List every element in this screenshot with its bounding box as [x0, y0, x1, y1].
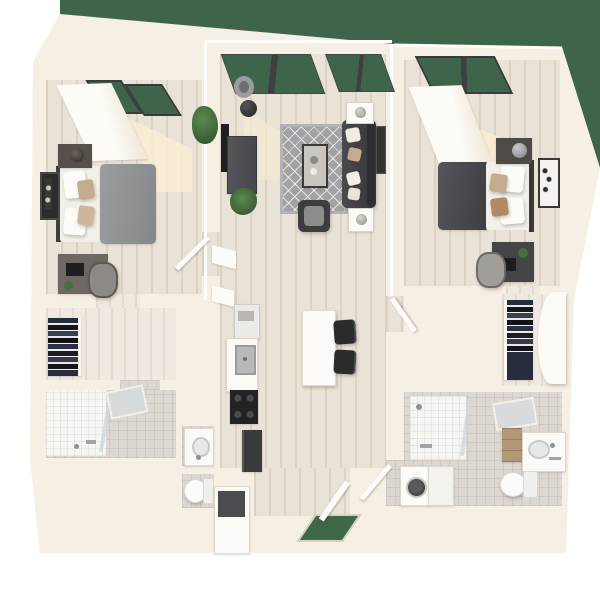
bedroom2-nightstand-lamp [512, 143, 527, 158]
dryer [428, 466, 454, 506]
sofa-charcoal [342, 120, 376, 208]
bathroom1-toilet [184, 476, 212, 504]
bed1-duvet-gray [100, 164, 156, 244]
shower2-head [416, 404, 422, 410]
bathroom1-vanity-sink [184, 428, 214, 466]
bathroom2-sink-counter [522, 432, 566, 472]
side-table-south [348, 208, 374, 232]
bedroom2-desk-plant [518, 248, 528, 258]
toilet2-tank [523, 471, 538, 498]
range-cooktop [230, 390, 258, 424]
kitchen-faucet [243, 357, 247, 361]
island-stool-1 [333, 319, 357, 344]
bedroom2-wall-art [538, 158, 560, 208]
bed1-pillow-tan-2 [77, 205, 95, 226]
bed2-pillow-rust [490, 197, 509, 217]
bedroom2-desk-chair [476, 252, 506, 288]
bathroom2-vanity-drawers [502, 428, 522, 462]
bedroom1-bed [56, 164, 156, 244]
bathroom2-toilet [500, 470, 540, 498]
side-table-north [346, 102, 374, 124]
arc-floor-lamp-sphere [240, 100, 257, 117]
side-table-north-lamp [355, 107, 366, 118]
kitchen-sink [235, 345, 256, 375]
bedroom1-wall-art [40, 172, 60, 220]
refrigerator [234, 304, 260, 340]
bedroom2-nightstand [496, 138, 532, 164]
sofa-pillow-white-2 [346, 171, 362, 187]
sofa-backrest [367, 122, 375, 206]
bedroom1-nightstand [58, 144, 92, 168]
bed2-duvet-charcoal [438, 162, 490, 230]
coffee-table-decor-1 [310, 156, 318, 164]
closet2-open-door [538, 292, 566, 384]
bedroom1-desk-laptop [66, 263, 84, 276]
vanity2-towel-bar [549, 457, 561, 460]
closet2-clothes-shelves [504, 300, 533, 380]
closet1-clothes-shelves [48, 318, 81, 376]
side-table-south-lamp [356, 214, 367, 225]
bedroom1-living-wall-edge [204, 42, 207, 300]
washer-front-load [400, 466, 430, 506]
sofa-pillow-tan [347, 147, 362, 162]
bedroom1-desk-chair [88, 262, 118, 298]
shower1-fixture [86, 440, 96, 444]
bathroom1-shower [46, 390, 106, 456]
sofa-pillow-white-3 [347, 187, 361, 201]
shower2-fixture [420, 444, 432, 448]
shower1-drain [74, 444, 79, 449]
closet2-door-opening [506, 286, 540, 294]
toilet1-tank [203, 478, 214, 504]
bedroom2-bed [438, 160, 534, 232]
bed2-headboard [529, 160, 534, 232]
vanity1-faucet [196, 455, 201, 460]
dining-island [302, 310, 336, 386]
bedroom1-nightstand-lamp [70, 148, 84, 162]
floor-plan-render [0, 0, 600, 600]
entry-closet-opening [218, 491, 245, 517]
vanity2-faucet [550, 443, 555, 448]
refrigerator-top [238, 311, 254, 321]
bathroom2-shower [410, 396, 466, 460]
bedroom1-desk-plant [64, 281, 73, 290]
media-console [227, 136, 257, 194]
living-top-wall-edge [206, 40, 392, 43]
vanity2-basin [528, 440, 550, 459]
bedroom1-art-print [45, 179, 52, 209]
armchair [298, 200, 330, 232]
oven-dishwasher [242, 430, 262, 472]
bed2-pillow-tan [489, 173, 508, 193]
arc-floor-lamp-shade [234, 76, 254, 98]
sofa-pillow-white-1 [345, 127, 361, 143]
armchair-cushion [304, 206, 324, 226]
vanity1-basin [192, 437, 210, 457]
coffee-table-decor-2 [310, 168, 317, 175]
bedroom1-floor-plant [192, 106, 218, 144]
washer-door [406, 477, 427, 498]
bed1-pillow-tan-1 [77, 179, 95, 200]
bedroom2-art-dots [542, 164, 552, 198]
kitchen-counter [226, 338, 258, 392]
entry-closet [214, 486, 250, 554]
living-wall-art [376, 126, 386, 174]
island-stool-2 [333, 349, 356, 374]
coffee-table [302, 144, 328, 188]
